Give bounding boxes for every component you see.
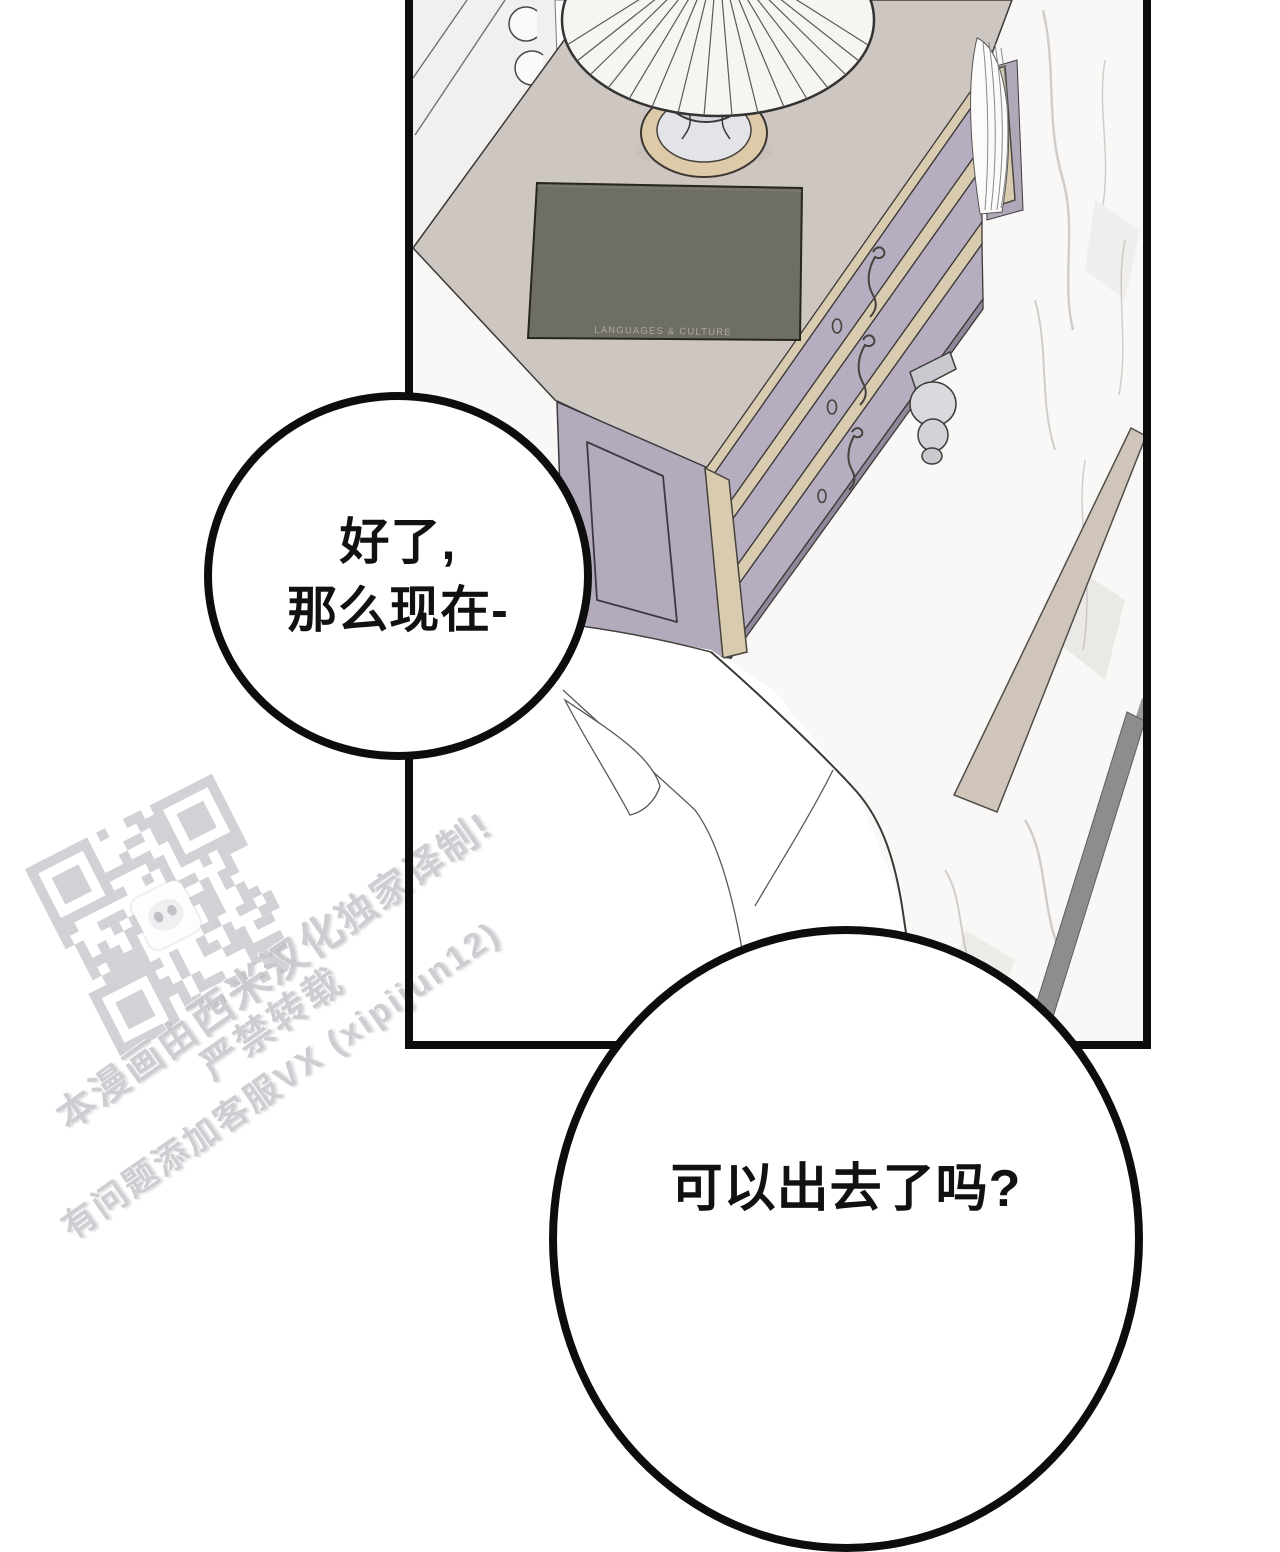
speech-bubble-1-line-1: 好了, bbox=[340, 508, 457, 576]
comic-page: LANGUAGES & CULTURE bbox=[0, 0, 1280, 1280]
mascot-icon bbox=[143, 893, 189, 936]
qr-modules bbox=[25, 774, 307, 1056]
qr-code-icon bbox=[25, 774, 307, 1056]
speech-bubble-1: 好了, 那么现在- bbox=[204, 392, 592, 760]
qr-finder-icon bbox=[25, 837, 119, 931]
speech-bubble-1-line-2: 那么现在- bbox=[287, 576, 509, 644]
speech-bubble-2-line-1: 可以出去了吗? bbox=[671, 1146, 1022, 1221]
book: LANGUAGES & CULTURE bbox=[528, 183, 802, 340]
watermark-brand: 西米汉化 bbox=[181, 903, 355, 1045]
speech-bubble-2: 可以出去了吗? bbox=[549, 926, 1143, 1552]
qr-logo-badge bbox=[128, 877, 203, 952]
qr-finder-icon bbox=[88, 962, 182, 1056]
qr-finder-icon bbox=[150, 774, 244, 868]
watermark-line-2: 严禁转载 bbox=[187, 951, 353, 1090]
watermark-line-1-pre: 本漫画由 bbox=[49, 1010, 207, 1138]
